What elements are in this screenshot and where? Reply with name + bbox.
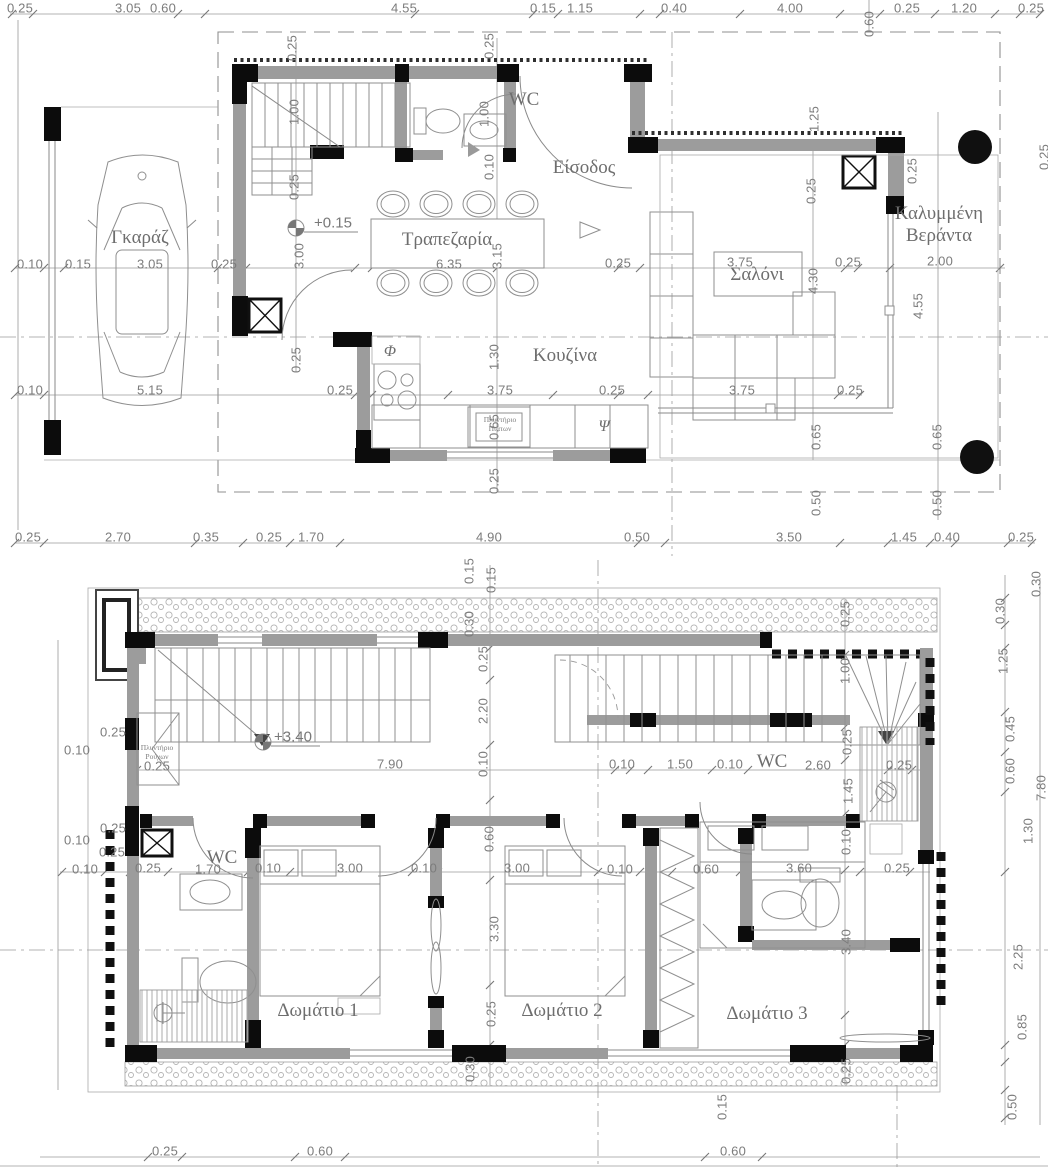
sofa bbox=[650, 212, 835, 420]
wc-right-fixtures bbox=[700, 727, 918, 930]
upper-floor-plan bbox=[0, 560, 1048, 1168]
gravel-strip-top bbox=[125, 598, 937, 632]
veranda bbox=[658, 130, 998, 474]
entrance-door bbox=[520, 76, 632, 238]
ground-floor-walls bbox=[232, 60, 905, 463]
bed-3 bbox=[700, 822, 930, 1042]
staircase-ground bbox=[252, 83, 410, 195]
garage-car bbox=[88, 155, 196, 406]
floor-plan-drawing bbox=[0, 0, 1048, 1168]
dining-table bbox=[371, 191, 544, 296]
staircase-upper-left bbox=[155, 648, 430, 746]
bedroom1-door-arc bbox=[378, 818, 436, 876]
bed-1 bbox=[260, 846, 380, 1014]
wc-left-fixtures bbox=[140, 818, 256, 1042]
ground-floor-plan bbox=[0, 0, 1048, 556]
bedroom2-door-arc bbox=[564, 818, 622, 876]
wardrobe bbox=[660, 828, 698, 1048]
living-room-label-box bbox=[714, 252, 802, 296]
kitchen-door-arc bbox=[282, 270, 352, 340]
level-symbol-ground bbox=[288, 220, 358, 236]
wc-fixtures-ground bbox=[414, 94, 516, 157]
veranda-column bbox=[960, 440, 994, 474]
floor-plan-sheet: 0.253.050.604.550.151.150.404.000.600.25… bbox=[0, 0, 1048, 1168]
kitchen-counter bbox=[372, 336, 648, 448]
veranda-column bbox=[958, 130, 992, 164]
bed-2 bbox=[505, 846, 625, 996]
gravel-strip-bottom bbox=[125, 1062, 937, 1086]
laundry-closet bbox=[137, 713, 179, 785]
